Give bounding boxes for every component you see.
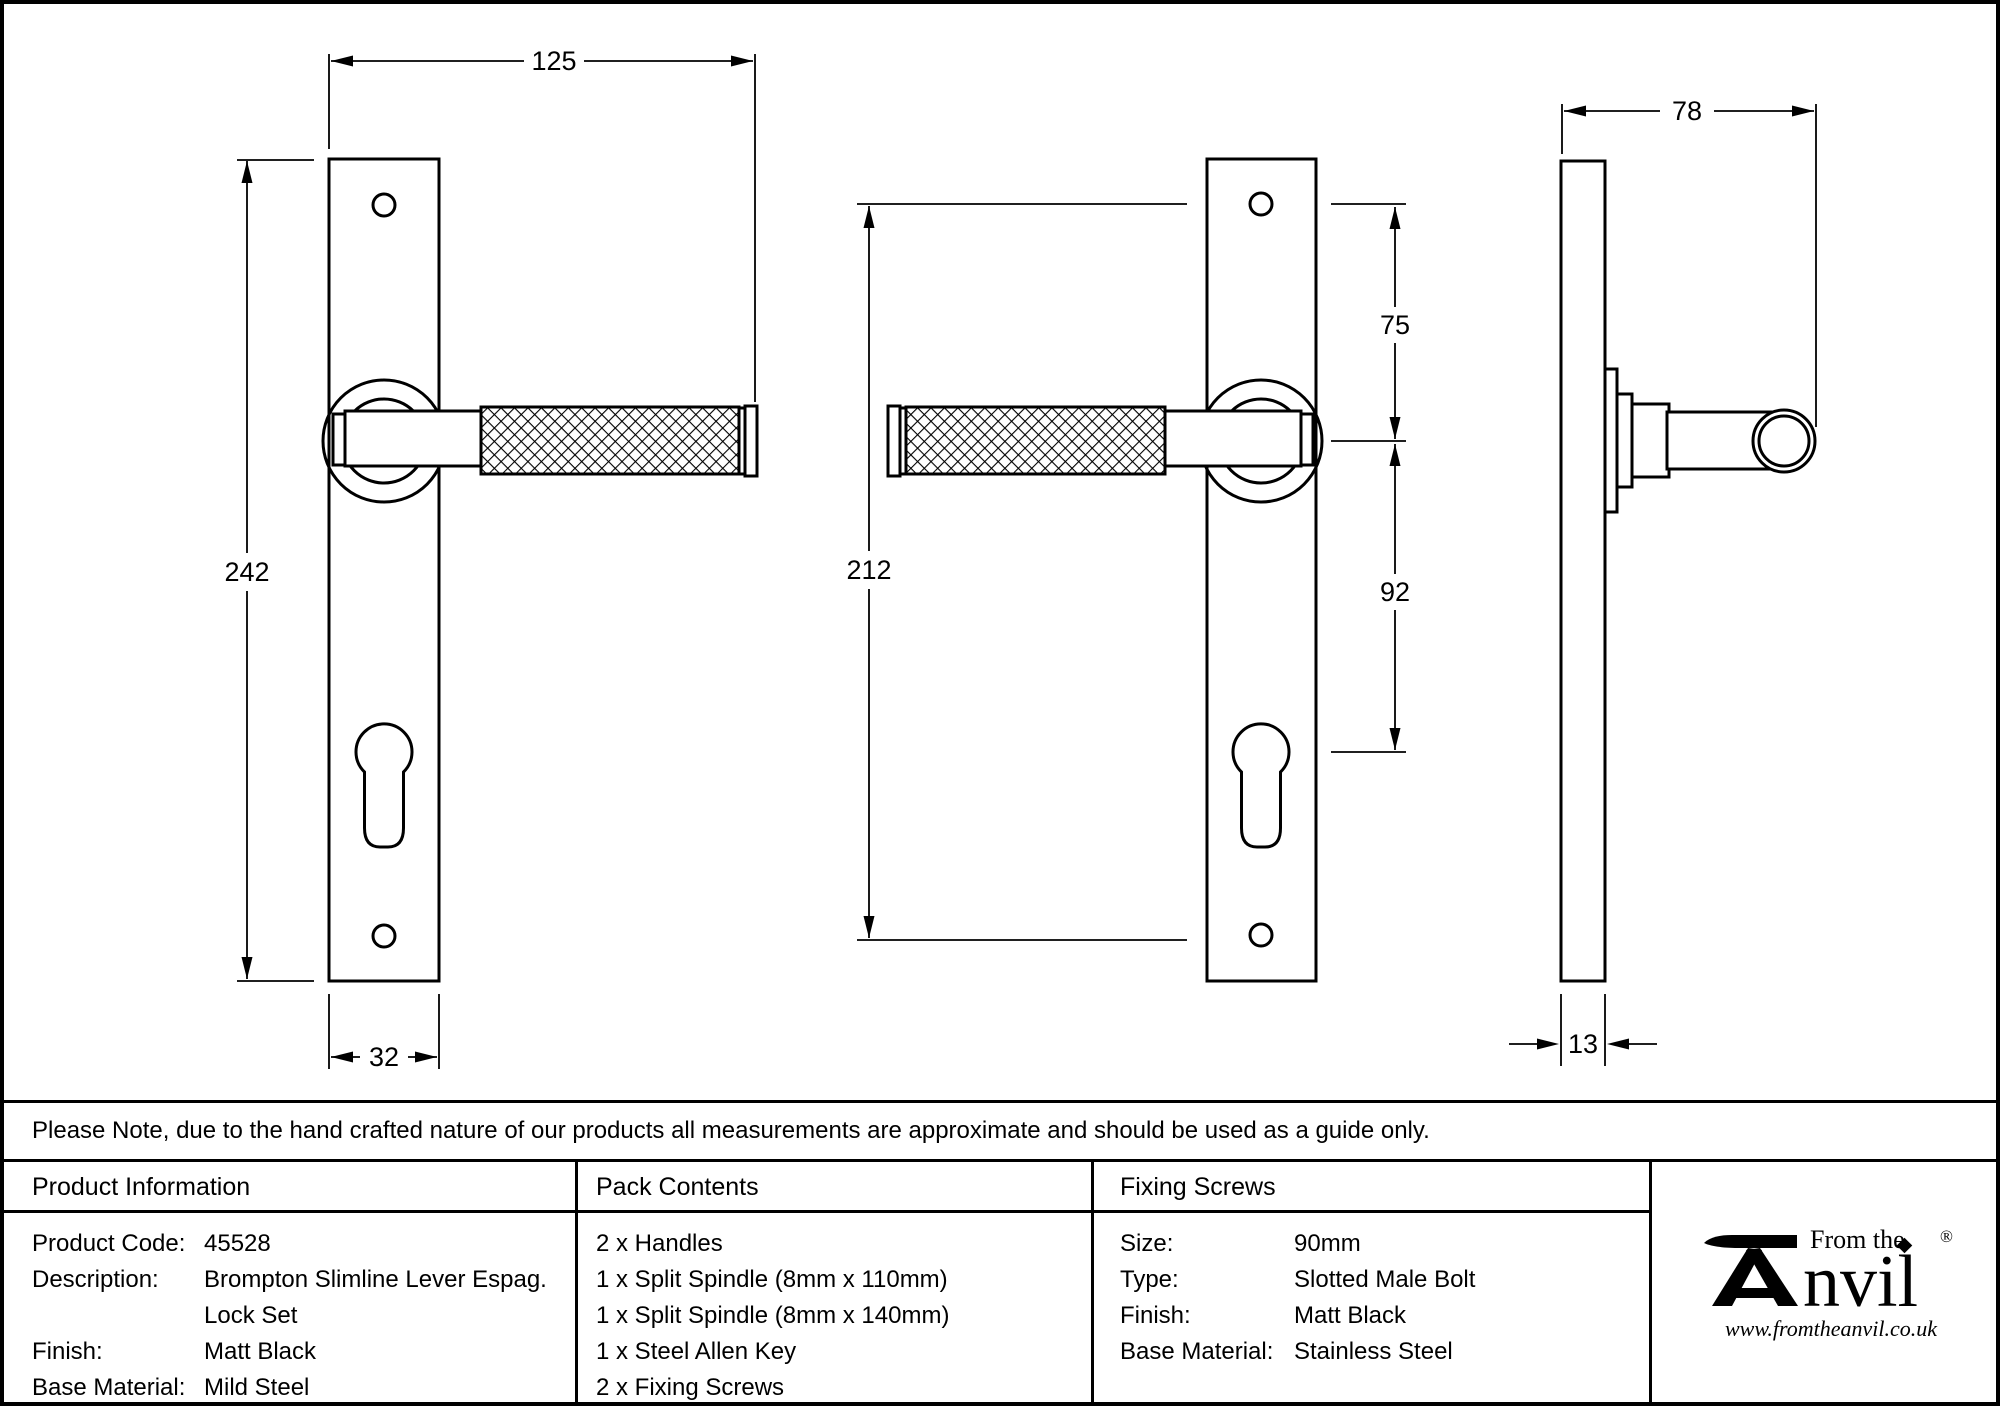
table-divider-1 [575, 1162, 578, 1402]
backplate-side [1561, 161, 1605, 981]
measurement-note-row: Please Note, due to the hand crafted nat… [4, 1100, 1996, 1162]
screw-size-value: 90mm [1294, 1226, 1361, 1262]
rose-collar-side [1632, 404, 1669, 477]
grip-end-cap [745, 406, 757, 476]
finish-value: Matt Black [204, 1334, 316, 1370]
euro-cylinder-cutout-2 [1233, 724, 1289, 847]
table-header-underline [4, 1210, 1650, 1213]
table-divider-2 [1091, 1162, 1094, 1402]
spec-table: Product Information Pack Contents Fixing… [4, 1162, 1996, 1402]
pack-contents-body: 2 x Handles 1 x Split Spindle (8mm x 110… [596, 1226, 1076, 1406]
screw-type-label: Type: [1120, 1262, 1294, 1298]
pack-item: 1 x Steel Allen Key [596, 1334, 1076, 1370]
fixing-screws-body: Size: 90mm Type: Slotted Male Bolt Finis… [1120, 1226, 1635, 1370]
base-material-label: Base Material: [32, 1370, 204, 1406]
dim-92-label: 92 [1380, 577, 1410, 607]
screw-type-value: Slotted Male Bolt [1294, 1262, 1475, 1298]
screw-finish-label: Finish: [1120, 1298, 1294, 1334]
front-view-dimensions [221, 44, 755, 1074]
product-information-header: Product Information [32, 1173, 250, 1202]
from-the-anvil-logo: From the nvil ® www.fromtheanvil.co.uk [1702, 1226, 1992, 1361]
brand-website: www.fromtheanvil.co.uk [1725, 1316, 1938, 1341]
description-row: Description: Brompton Slimline Lever Esp… [32, 1262, 567, 1334]
pack-item: 2 x Handles [596, 1226, 1076, 1262]
screw-finish-value: Matt Black [1294, 1298, 1406, 1334]
base-material-value: Mild Steel [204, 1370, 309, 1406]
screw-size-row: Size: 90mm [1120, 1226, 1635, 1262]
dim-thickness-label: 13 [1568, 1029, 1598, 1059]
middle-view [888, 159, 1322, 981]
fixing-screws-header: Fixing Screws [1120, 1173, 1276, 1202]
side-view [1561, 161, 1815, 981]
front-view [323, 159, 757, 981]
backplate-front [329, 159, 439, 981]
product-code-row: Product Code: 45528 [32, 1226, 567, 1262]
description-label: Description: [32, 1262, 204, 1298]
euro-cylinder-cutout [356, 724, 412, 847]
dim-width-label: 125 [531, 46, 576, 76]
screw-material-label: Base Material: [1120, 1334, 1294, 1370]
lever-arm-2 [1165, 411, 1301, 466]
pack-item: 1 x Split Spindle (8mm x 140mm) [596, 1298, 1076, 1334]
base-material-row: Base Material: Mild Steel [32, 1370, 567, 1406]
technical-drawing-sheet: 125 242 32 [0, 0, 2000, 1406]
drawing-area: 125 242 32 [4, 4, 2000, 1104]
dim-mid-height-label: 212 [846, 555, 891, 585]
rose-step-side [1617, 394, 1632, 487]
screw-type-row: Type: Slotted Male Bolt [1120, 1262, 1635, 1298]
lever-arm [345, 411, 481, 466]
pack-item: 2 x Fixing Screws [596, 1370, 1076, 1406]
brand-name: nvil [1803, 1241, 1918, 1323]
finish-label: Finish: [32, 1334, 204, 1370]
product-code-label: Product Code: [32, 1226, 204, 1262]
screw-material-value: Stainless Steel [1294, 1334, 1453, 1370]
brand-logo-cell: From the nvil ® www.fromtheanvil.co.uk [1652, 1162, 2000, 1406]
lever-spindle-plate-2 [1301, 414, 1313, 465]
lever-spindle-plate [333, 414, 345, 465]
backplate-front-2 [1207, 159, 1316, 981]
side-view-dimensions [1509, 94, 1816, 1066]
pack-item: 1 x Split Spindle (8mm x 110mm) [596, 1262, 1076, 1298]
dim-plate-width-label: 32 [369, 1042, 399, 1072]
screw-size-label: Size: [1120, 1226, 1294, 1262]
middle-view-dimensions [843, 204, 1417, 940]
dim-75-label: 75 [1380, 310, 1410, 340]
knurled-grip-2 [906, 407, 1165, 474]
measurement-note: Please Note, due to the hand crafted nat… [32, 1117, 1430, 1145]
pack-contents-header: Pack Contents [596, 1173, 759, 1202]
grip-end-outer [1753, 410, 1815, 472]
product-code-value: 45528 [204, 1226, 271, 1262]
screw-material-row: Base Material: Stainless Steel [1120, 1334, 1635, 1370]
description-value: Brompton Slimline Lever Espag. Lock Set [204, 1262, 552, 1334]
registered-mark: ® [1940, 1227, 1953, 1246]
screw-finish-row: Finish: Matt Black [1120, 1298, 1635, 1334]
rose-flange-side [1605, 369, 1617, 512]
dim-depth-label: 78 [1672, 96, 1702, 126]
finish-row: Finish: Matt Black [32, 1334, 567, 1370]
dim-height-label: 242 [224, 557, 269, 587]
knurled-grip [481, 407, 739, 474]
grip-end-cap-2 [888, 406, 900, 476]
product-information-body: Product Code: 45528 Description: Brompto… [32, 1226, 567, 1406]
